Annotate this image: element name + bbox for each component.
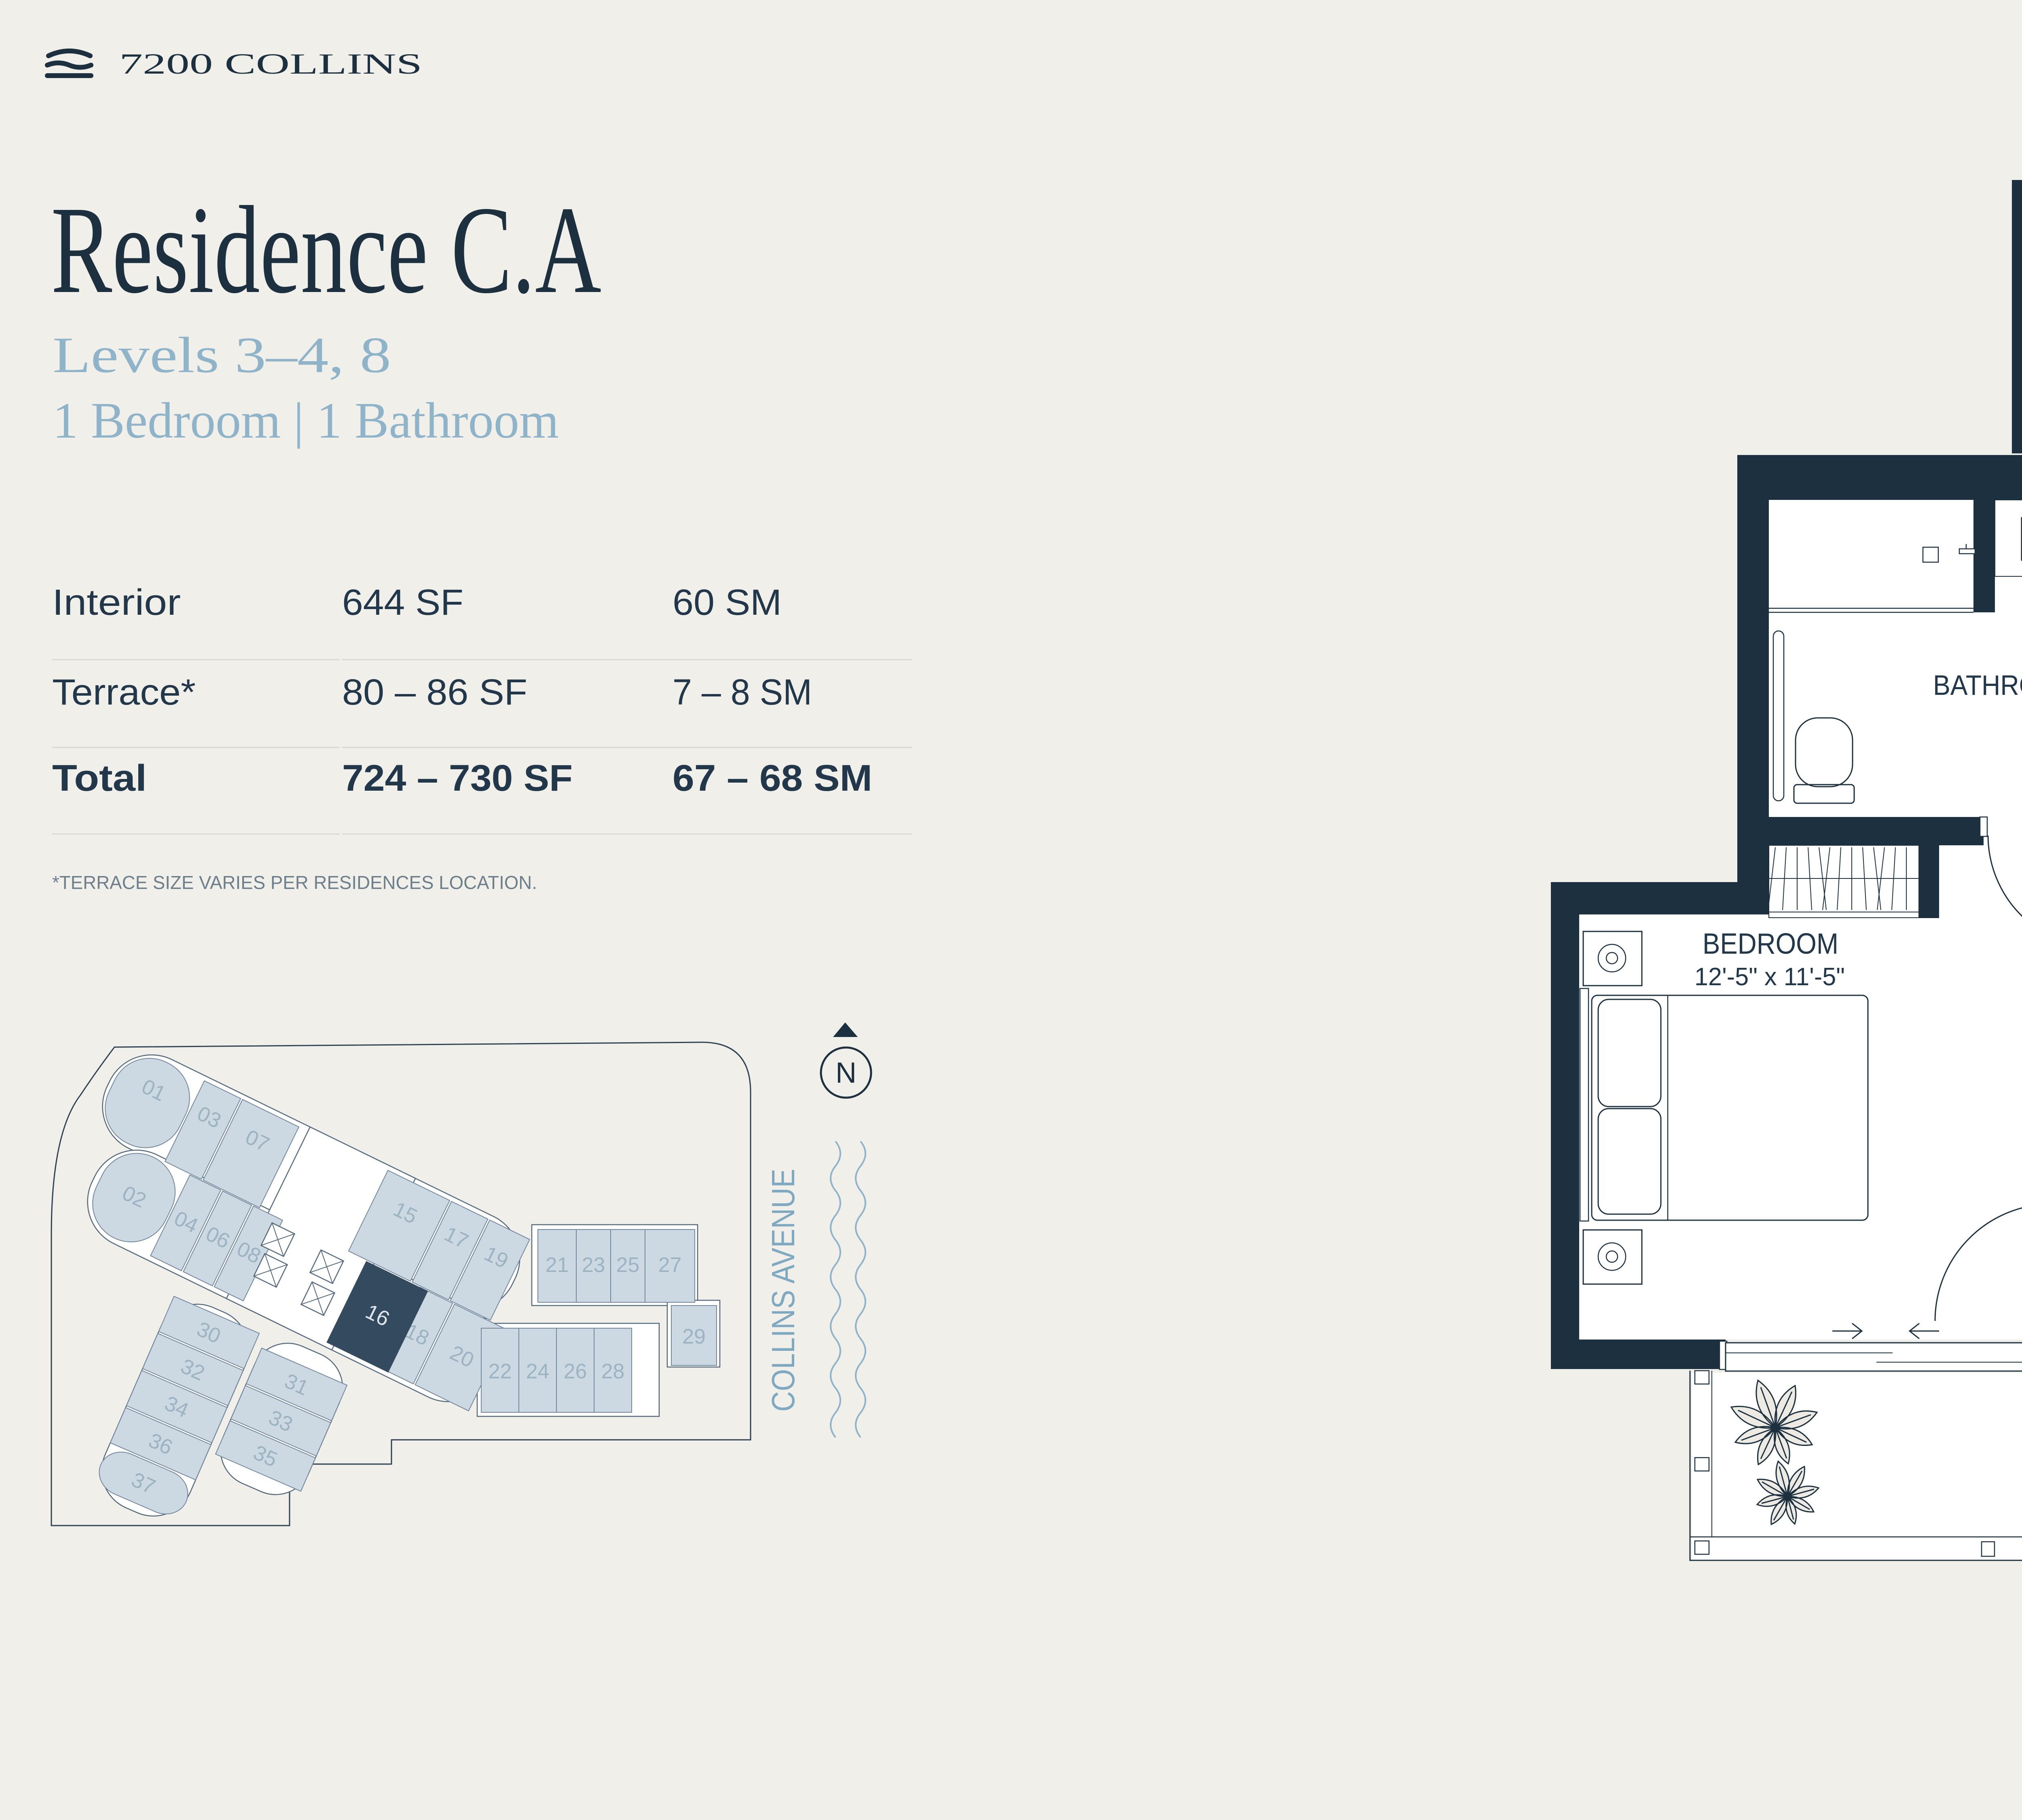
svg-text:28: 28 (601, 1360, 625, 1383)
svg-text:7 – 8 SM: 7 – 8 SM (673, 672, 812, 713)
svg-text:7200 COLLINS: 7200 COLLINS (119, 48, 422, 80)
svg-text:21: 21 (546, 1253, 569, 1277)
svg-text:BATHROOM: BATHROOM (1933, 669, 2022, 701)
svg-text:Terrace*: Terrace* (52, 672, 196, 713)
svg-text:12'-5" x 11'-5": 12'-5" x 11'-5" (1694, 963, 1845, 991)
svg-text:Levels 3–4, 8: Levels 3–4, 8 (53, 327, 391, 383)
svg-text:COLLINS AVENUE: COLLINS AVENUE (765, 1169, 801, 1412)
svg-text:22: 22 (489, 1360, 512, 1383)
svg-text:60 SM: 60 SM (673, 582, 782, 623)
svg-text:Residence C.A: Residence C.A (51, 181, 601, 320)
svg-text:Total: Total (52, 758, 147, 799)
svg-text:724 – 730 SF: 724 – 730 SF (342, 758, 573, 799)
svg-text:23: 23 (582, 1253, 605, 1277)
svg-text:*TERRACE SIZE VARIES PER RESID: *TERRACE SIZE VARIES PER RESIDENCES LOCA… (52, 872, 537, 893)
svg-text:29: 29 (682, 1325, 706, 1348)
svg-text:N: N (835, 1057, 857, 1089)
svg-text:26: 26 (564, 1360, 587, 1383)
svg-text:25: 25 (616, 1253, 640, 1277)
svg-text:1 Bedroom | 1 Bathroom: 1 Bedroom | 1 Bathroom (53, 393, 559, 449)
svg-text:Interior: Interior (52, 582, 181, 623)
svg-text:67 – 68 SM: 67 – 68 SM (673, 758, 872, 799)
svg-text:80 – 86 SF: 80 – 86 SF (342, 672, 527, 713)
svg-text:27: 27 (658, 1253, 682, 1277)
svg-text:644 SF: 644 SF (342, 582, 463, 623)
svg-text:BEDROOM: BEDROOM (1703, 928, 1838, 960)
svg-text:24: 24 (526, 1360, 550, 1383)
